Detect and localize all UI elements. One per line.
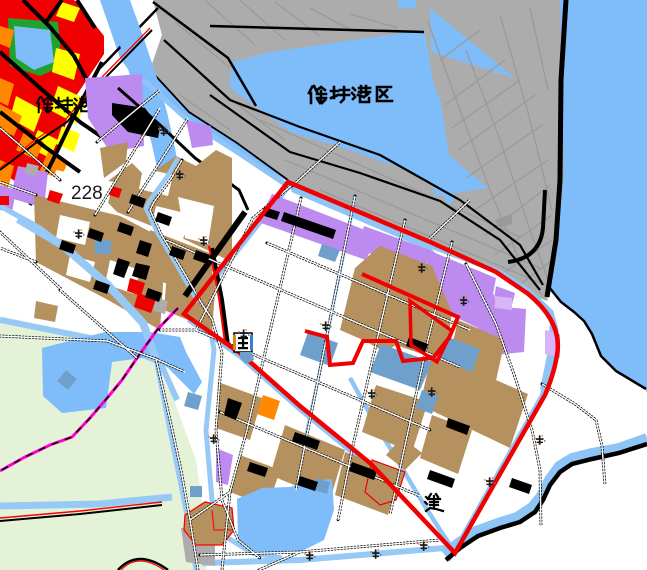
svg-text:228: 228 [71, 183, 103, 204]
